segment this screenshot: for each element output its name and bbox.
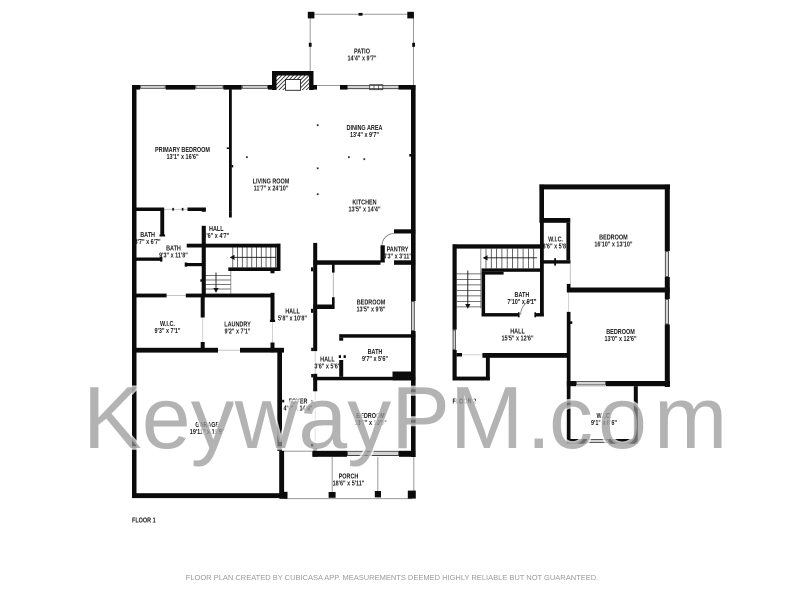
svg-text:13'4" x 9'7": 13'4" x 9'7" bbox=[350, 131, 379, 139]
svg-text:KeywayPM.com: KeywayPM.com bbox=[83, 368, 727, 467]
svg-text:FLOOR PLAN CREATED BY CUBICASA: FLOOR PLAN CREATED BY CUBICASA APP. MEAS… bbox=[186, 573, 598, 582]
svg-text:9'2" x 7'1": 9'2" x 7'1" bbox=[224, 328, 250, 336]
svg-text:13'0" x 12'6": 13'0" x 12'6" bbox=[604, 335, 636, 343]
svg-text:9'7" x 5'6": 9'7" x 5'6" bbox=[362, 355, 388, 363]
svg-text:11'7" x 24'10": 11'7" x 24'10" bbox=[254, 185, 289, 193]
svg-text:3'6" x 4'7": 3'6" x 4'7" bbox=[203, 232, 229, 240]
svg-text:9'3" x 7'1": 9'3" x 7'1" bbox=[154, 327, 180, 335]
svg-text:13'5" x 9'8": 13'5" x 9'8" bbox=[356, 306, 385, 314]
svg-text:3'6" x 5'8": 3'6" x 5'8" bbox=[543, 243, 569, 251]
svg-text:9'3" x 11'8": 9'3" x 11'8" bbox=[159, 252, 188, 260]
svg-text:16'10" x 13'10": 16'10" x 13'10" bbox=[594, 241, 632, 249]
svg-text:5'8" x 10'8": 5'8" x 10'8" bbox=[278, 315, 307, 323]
svg-text:14'4" x 9'7": 14'4" x 9'7" bbox=[347, 55, 376, 63]
svg-text:7'10" x 6'1": 7'10" x 6'1" bbox=[507, 298, 536, 306]
svg-text:18'6" x 5'11": 18'6" x 5'11" bbox=[333, 480, 365, 488]
svg-text:13'1" x 16'6": 13'1" x 16'6" bbox=[166, 153, 198, 161]
svg-text:3'7" x 6'7": 3'7" x 6'7" bbox=[135, 238, 161, 246]
svg-text:13'5" x 14'4": 13'5" x 14'4" bbox=[348, 206, 380, 214]
svg-text:FLOOR 1: FLOOR 1 bbox=[132, 517, 156, 525]
svg-text:4'3" x 3'11": 4'3" x 3'11" bbox=[383, 253, 412, 261]
svg-text:15'5" x 12'6": 15'5" x 12'6" bbox=[501, 335, 533, 343]
